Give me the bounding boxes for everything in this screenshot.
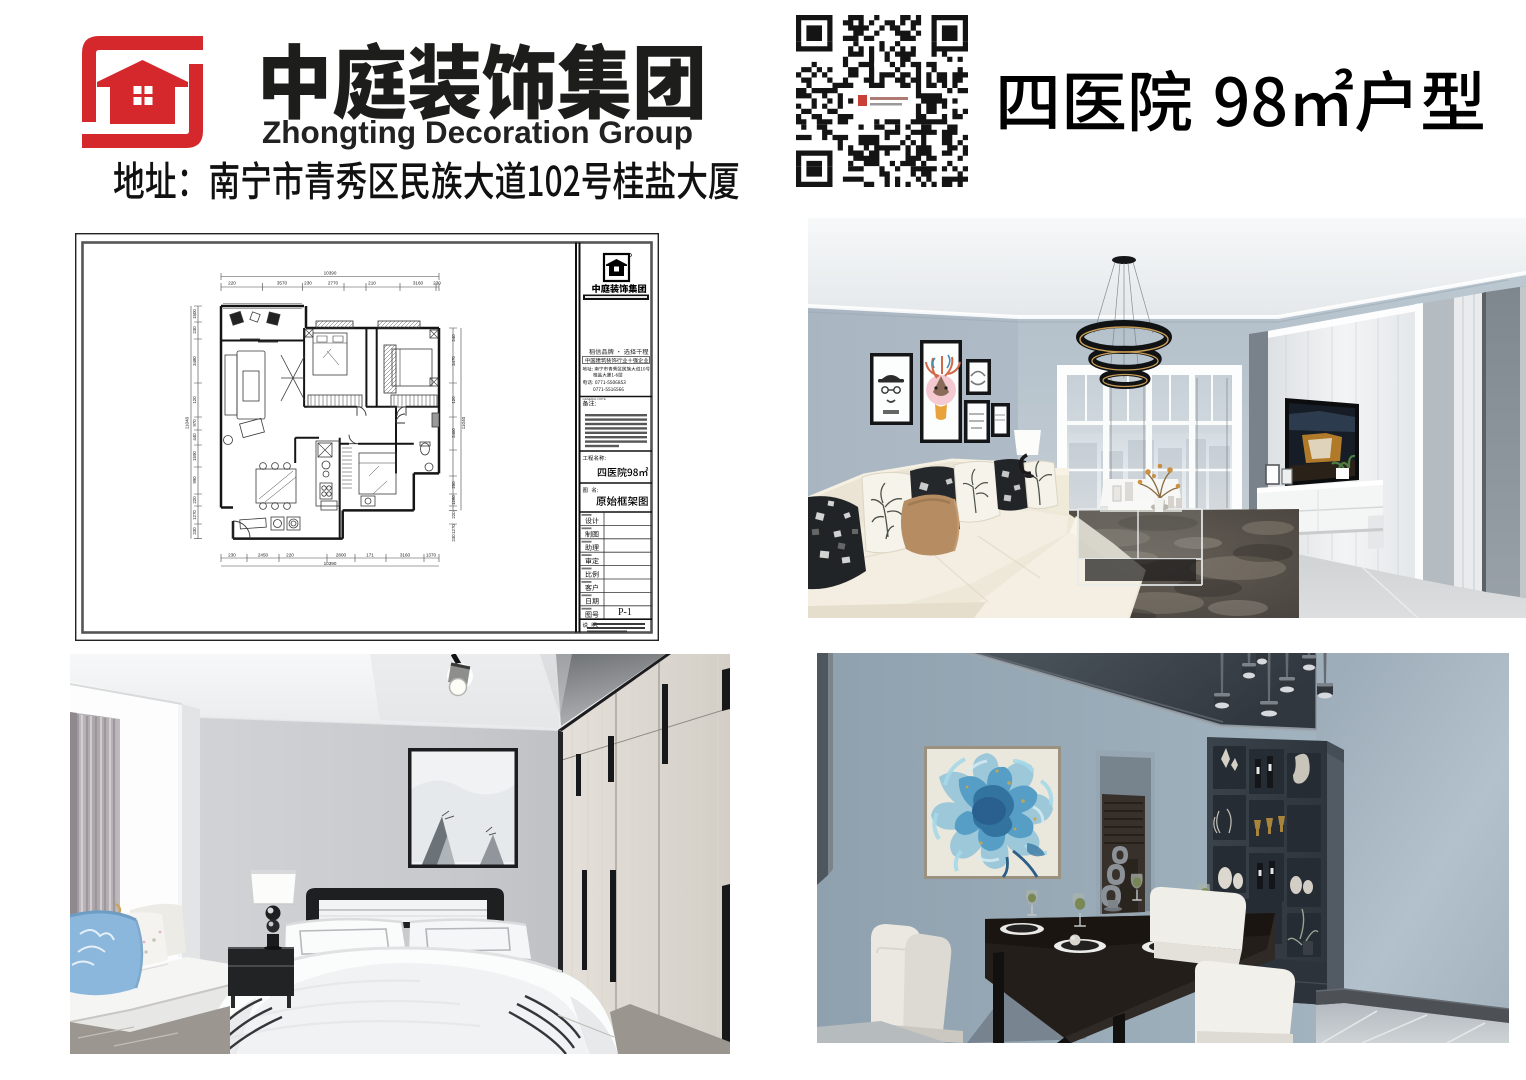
svg-text:2770: 2770 bbox=[328, 281, 339, 286]
svg-text:11040: 11040 bbox=[185, 416, 190, 429]
svg-text:230: 230 bbox=[228, 553, 236, 558]
svg-text:171: 171 bbox=[366, 553, 374, 558]
svg-text:10390: 10390 bbox=[324, 271, 337, 276]
svg-text:230: 230 bbox=[451, 534, 456, 542]
svg-text:120: 120 bbox=[451, 396, 456, 404]
svg-text:3570: 3570 bbox=[277, 281, 288, 286]
svg-text:220: 220 bbox=[192, 496, 197, 504]
svg-text:11040: 11040 bbox=[461, 416, 466, 429]
svg-text:220: 220 bbox=[228, 281, 236, 286]
svg-text:230: 230 bbox=[192, 326, 197, 334]
svg-text:440: 440 bbox=[192, 433, 197, 441]
svg-text:1270: 1270 bbox=[451, 524, 456, 534]
svg-text:230: 230 bbox=[304, 281, 312, 286]
svg-text:1370: 1370 bbox=[426, 553, 437, 558]
svg-text:P-1: P-1 bbox=[618, 607, 632, 618]
svg-text:2450: 2450 bbox=[258, 553, 269, 558]
svg-text:3480: 3480 bbox=[192, 356, 197, 366]
svg-text:2460: 2460 bbox=[451, 428, 456, 438]
svg-text:220: 220 bbox=[451, 511, 456, 519]
svg-text:240: 240 bbox=[451, 334, 456, 342]
svg-text:1500: 1500 bbox=[192, 309, 197, 319]
svg-text:10390: 10390 bbox=[324, 561, 337, 566]
svg-text:970: 970 bbox=[192, 419, 197, 427]
svg-text:2800: 2800 bbox=[336, 553, 347, 558]
svg-text:230: 230 bbox=[192, 527, 197, 535]
svg-text:1590: 1590 bbox=[192, 451, 197, 461]
svg-text:220: 220 bbox=[286, 553, 294, 558]
svg-text:1280: 1280 bbox=[451, 495, 456, 505]
svg-text:1270: 1270 bbox=[192, 510, 197, 520]
svg-text:230: 230 bbox=[433, 281, 441, 286]
svg-text:210: 210 bbox=[368, 281, 376, 286]
svg-text:Zhongting Decoration Group: Zhongting Decoration Group bbox=[262, 114, 693, 150]
svg-text:3160: 3160 bbox=[400, 553, 411, 558]
svg-text:GENERAL NOTE: GENERAL NOTE bbox=[583, 397, 606, 401]
svg-text:250: 250 bbox=[451, 481, 456, 489]
svg-text:120: 120 bbox=[192, 396, 197, 404]
svg-text:990: 990 bbox=[192, 476, 197, 484]
svg-text:3160: 3160 bbox=[413, 281, 424, 286]
svg-text:3470: 3470 bbox=[451, 356, 456, 366]
